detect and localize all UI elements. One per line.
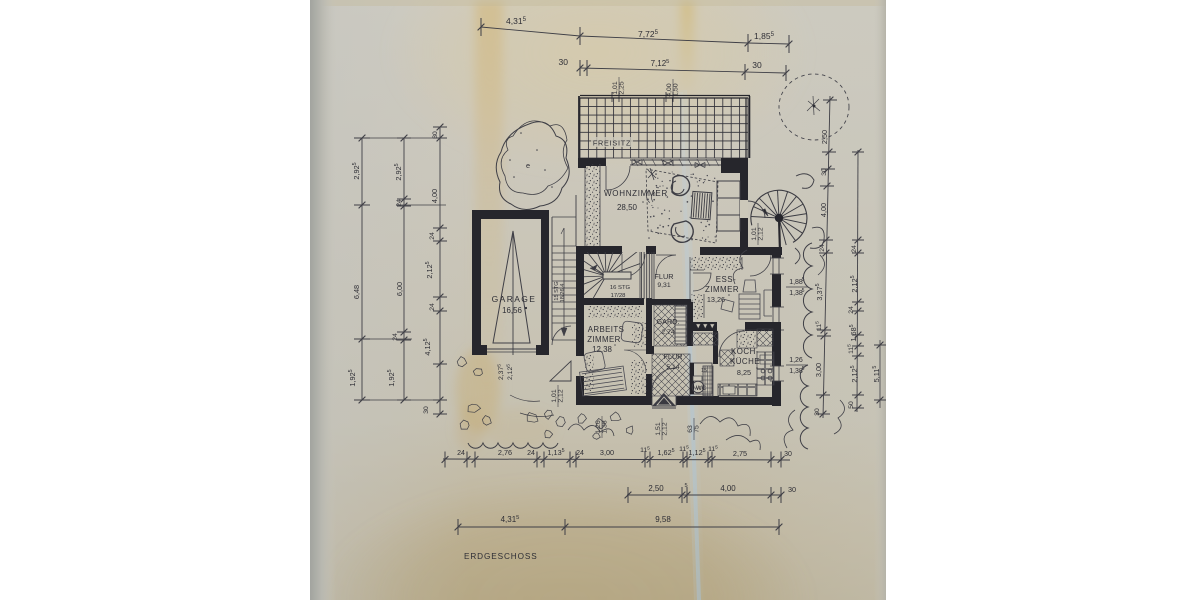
- svg-text:WOHNZIMMER: WOHNZIMMER: [604, 189, 668, 198]
- svg-text:30: 30: [814, 408, 821, 416]
- svg-text:24: 24: [429, 232, 436, 240]
- svg-text:ZIMMER: ZIMMER: [587, 335, 621, 344]
- svg-text:24: 24: [851, 245, 858, 253]
- svg-text:24: 24: [396, 199, 403, 207]
- svg-text:5,14: 5,14: [666, 364, 679, 371]
- svg-text:9,58: 9,58: [655, 515, 671, 524]
- svg-text:15: 15: [701, 368, 707, 374]
- svg-text:e: e: [526, 161, 530, 170]
- svg-text:17/28: 17/28: [611, 293, 626, 299]
- svg-text:1,38: 1,38: [602, 420, 609, 433]
- svg-text:°: °: [642, 201, 644, 207]
- svg-text:16,56: 16,56: [502, 306, 522, 315]
- svg-text:75: 75: [694, 425, 701, 433]
- svg-text:24: 24: [527, 450, 535, 457]
- svg-text:2,12: 2,12: [758, 227, 765, 240]
- svg-text:8,25: 8,25: [737, 368, 751, 377]
- svg-text:30: 30: [784, 451, 792, 458]
- svg-text:16 STG: 16 STG: [610, 285, 631, 291]
- svg-text:4,00: 4,00: [720, 484, 736, 493]
- svg-text:18/26,4: 18/26,4: [560, 284, 566, 303]
- svg-text:FREISITZ: FREISITZ: [593, 139, 631, 148]
- svg-text:30: 30: [423, 406, 430, 414]
- svg-text:4,00: 4,00: [819, 203, 828, 217]
- svg-text:30: 30: [821, 168, 828, 176]
- svg-text:6,00: 6,00: [395, 282, 404, 296]
- svg-text:2,25: 2,25: [619, 81, 626, 94]
- svg-text:WC: WC: [696, 385, 707, 392]
- svg-text:2,75: 2,75: [733, 449, 747, 458]
- svg-text:24: 24: [848, 306, 855, 314]
- svg-text:3,00: 3,00: [600, 448, 614, 457]
- svg-text:FLUR: FLUR: [654, 272, 673, 281]
- svg-text:5: 5: [684, 483, 687, 489]
- svg-text:2,50: 2,50: [648, 484, 664, 493]
- svg-text:KOCH-: KOCH-: [731, 347, 759, 356]
- svg-text:2,50: 2,50: [820, 130, 829, 144]
- svg-text:1,26: 1,26: [789, 357, 803, 364]
- svg-text:GARD.: GARD.: [656, 317, 679, 326]
- svg-text:FLUR: FLUR: [663, 352, 682, 361]
- svg-text:°: °: [614, 344, 616, 350]
- svg-text:30: 30: [559, 57, 569, 67]
- svg-text:GARAGE: GARAGE: [492, 294, 537, 304]
- svg-text:24: 24: [457, 450, 465, 457]
- svg-text:4,00: 4,00: [430, 189, 439, 203]
- svg-text:°: °: [756, 367, 758, 373]
- svg-text:30: 30: [788, 485, 796, 494]
- svg-text:28,50: 28,50: [617, 203, 638, 212]
- svg-text:9,31: 9,31: [657, 282, 670, 289]
- svg-text:24: 24: [819, 244, 826, 252]
- svg-text:24: 24: [429, 303, 436, 311]
- svg-text:ARBEITS: ARBEITS: [588, 325, 625, 334]
- svg-text:5: 5: [802, 288, 805, 294]
- svg-text:2,74: 2,74: [661, 329, 674, 336]
- svg-text:50: 50: [848, 401, 855, 409]
- svg-text:°: °: [728, 294, 730, 300]
- svg-text:1,50: 1,50: [673, 83, 680, 96]
- svg-text:2,76: 2,76: [498, 448, 512, 457]
- svg-text:24: 24: [392, 333, 399, 341]
- svg-text:6,48: 6,48: [352, 285, 361, 299]
- svg-text:30: 30: [752, 60, 762, 70]
- svg-text:ERDGESCHOSS: ERDGESCHOSS: [464, 552, 538, 561]
- svg-text:2,12: 2,12: [558, 389, 565, 402]
- svg-text:KÜCHE: KÜCHE: [730, 357, 760, 366]
- svg-text:24: 24: [576, 450, 584, 457]
- svg-text:2,12: 2,12: [662, 422, 669, 435]
- svg-text:3,00: 3,00: [814, 363, 823, 377]
- svg-text:ZIMMER: ZIMMER: [705, 285, 739, 294]
